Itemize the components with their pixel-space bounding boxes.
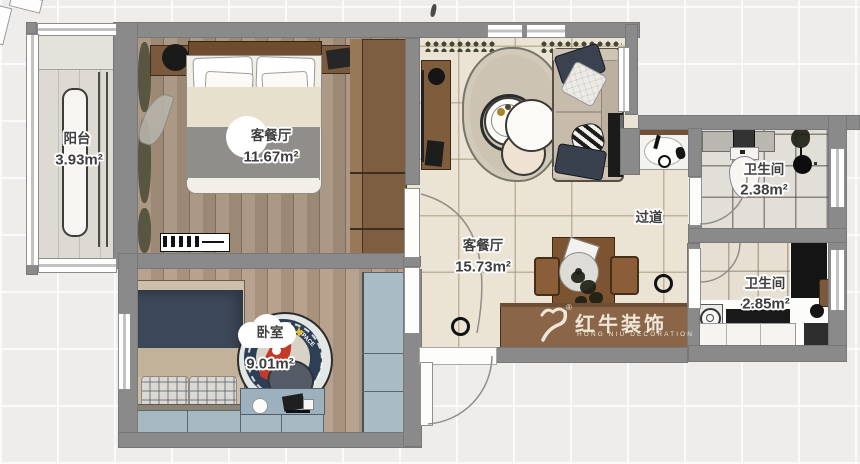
wall — [118, 432, 422, 448]
wall-post — [26, 22, 37, 34]
washing-machine-door — [706, 314, 714, 322]
toilet-button — [740, 150, 745, 154]
sofa-seat-divider — [556, 111, 601, 113]
curtain — [138, 208, 151, 253]
balcony-cabinet — [37, 34, 117, 70]
floor-drain — [654, 274, 673, 293]
outside-frame-decor — [0, 5, 12, 46]
wall — [688, 228, 847, 243]
window — [526, 24, 566, 38]
wall — [118, 253, 420, 269]
floor-outlet — [451, 317, 470, 336]
plant-garland — [424, 40, 497, 52]
wall — [688, 128, 702, 177]
desk-globe — [252, 398, 268, 414]
cabinet-seam — [726, 323, 727, 346]
window — [830, 249, 845, 311]
wall — [620, 128, 640, 175]
radiator-grille — [163, 236, 199, 247]
wardrobe-seam — [362, 391, 403, 392]
bath-plant — [791, 128, 810, 148]
keyboard — [286, 410, 310, 413]
wardrobe-seam — [350, 172, 405, 174]
door-leaf — [404, 188, 420, 258]
bed-blanket-fold — [138, 348, 242, 377]
bed-sheet-edge — [188, 178, 319, 192]
room-area-master-bedroom: 11.67m² — [243, 149, 298, 166]
outside-frame-decor — [9, 0, 43, 14]
room-label-second-bedroom: 卧室 — [257, 321, 284, 341]
wall — [405, 38, 420, 185]
window — [487, 24, 523, 38]
tv-desk-edge — [421, 70, 424, 162]
drain — [658, 155, 671, 168]
wardrobe-edge — [362, 272, 364, 432]
registered-mark: ® — [566, 303, 572, 312]
speaker — [428, 68, 445, 85]
wall — [688, 345, 847, 362]
wall-hook — [430, 4, 438, 18]
room-area-bath-bottom: 2.85m² — [742, 296, 790, 313]
room-area-second-bedroom: 9.01m² — [246, 356, 294, 373]
window — [26, 34, 39, 266]
room-area-bath-top: 2.38m² — [740, 182, 788, 199]
window — [118, 313, 131, 390]
room-area-living-dining: 15.73m² — [455, 259, 511, 276]
wall — [495, 347, 688, 363]
cabinet-seam — [187, 410, 188, 432]
monitor — [425, 140, 445, 167]
window — [37, 23, 117, 36]
room-label-bath-top: 卫生间 — [744, 158, 785, 178]
wardrobe-seam — [362, 353, 403, 354]
room-label-master-bedroom: 客餐厅 — [251, 124, 292, 144]
room-label-bath-bottom: 卫生间 — [745, 272, 786, 292]
window — [618, 47, 630, 112]
tablet — [326, 47, 352, 69]
bath-cabinet-dark — [804, 323, 828, 346]
dining-chair — [534, 257, 560, 296]
door-leaf — [404, 267, 420, 334]
window — [830, 148, 845, 208]
room-area-balcony: 3.93m² — [55, 152, 103, 169]
room-label-hallway: 过道 — [636, 206, 663, 226]
wardrobe-seam — [350, 228, 405, 230]
door-leaf — [689, 177, 702, 226]
floor-plan: SPACE — [0, 0, 860, 464]
wardrobe-panel — [350, 39, 363, 253]
wall — [638, 115, 860, 130]
wall — [113, 22, 138, 269]
door-leaf — [688, 248, 701, 309]
shower-control — [814, 162, 817, 165]
coffee-table-main — [505, 99, 558, 152]
entry-door-leaf — [420, 362, 433, 426]
table-decor — [497, 108, 505, 116]
room-label-living-dining: 客餐厅 — [463, 234, 504, 254]
radiator-line — [202, 241, 224, 243]
dining-chair — [610, 256, 639, 295]
shower-head — [793, 155, 812, 174]
cabinet-seam — [760, 323, 761, 346]
desk-notepad — [303, 399, 314, 410]
room-label-balcony: 阳台 — [64, 127, 91, 147]
window — [38, 258, 117, 273]
bed-blanket-navy — [137, 290, 243, 352]
bath-stool — [810, 304, 824, 318]
brand-watermark-subtitle: HONG NIU DECORATION — [577, 331, 694, 338]
table-lamp — [162, 44, 189, 71]
sideboard-top-lip — [500, 303, 688, 307]
